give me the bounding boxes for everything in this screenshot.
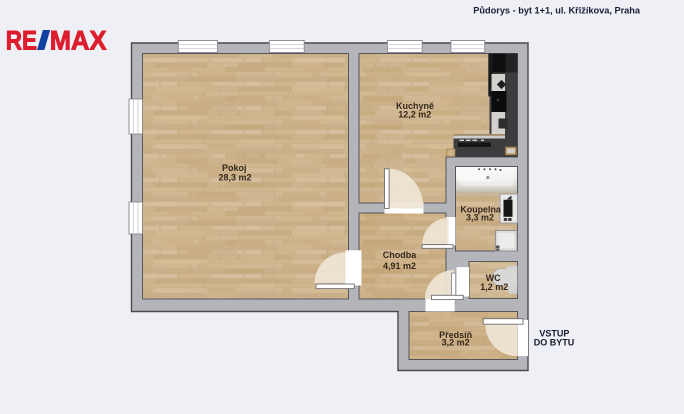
svg-text:Půdorys - byt 1+1, ul. Křižíko: Půdorys - byt 1+1, ul. Křižíkova, Praha — [473, 6, 641, 16]
svg-text:12,2 m2: 12,2 m2 — [398, 110, 431, 120]
svg-text:DO BYTU: DO BYTU — [534, 338, 575, 348]
svg-text:28,3 m2: 28,3 m2 — [218, 172, 251, 182]
svg-text:3,2 m2: 3,2 m2 — [442, 338, 470, 348]
svg-text:4,91 m2: 4,91 m2 — [383, 261, 416, 271]
svg-text:Chodba: Chodba — [383, 250, 417, 260]
svg-text:MAX: MAX — [50, 26, 107, 56]
svg-text:1,2 m2: 1,2 m2 — [480, 282, 508, 292]
svg-text:3,3 m2: 3,3 m2 — [466, 213, 494, 223]
svg-text:RE: RE — [6, 26, 37, 56]
